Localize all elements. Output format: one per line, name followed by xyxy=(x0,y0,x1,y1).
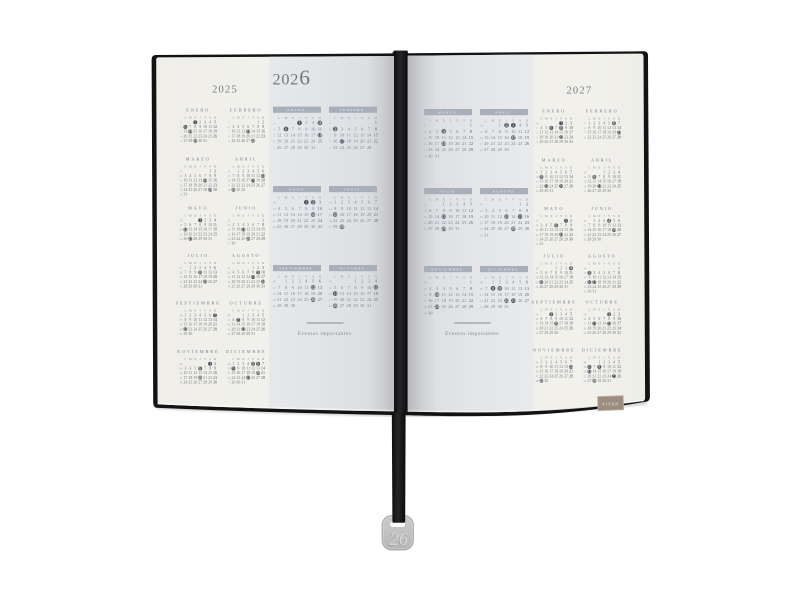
svg-text:425262728293031: 425262728293031 xyxy=(536,139,573,144)
svg-text:52728293031: 52728293031 xyxy=(180,138,207,143)
svg-text:3128293031: 3128293031 xyxy=(180,283,203,288)
svg-text:442728293031: 442728293031 xyxy=(228,331,256,336)
svg-text:41567891011: 41567891011 xyxy=(329,285,378,290)
svg-text:JUNIO: JUNIO xyxy=(235,206,257,211)
svg-text:FEBRERO: FEBRERO xyxy=(340,108,365,112)
svg-text:DICIEMBRE: DICIEMBRE xyxy=(582,348,623,353)
svg-text:2027: 2027 xyxy=(566,86,592,97)
svg-text:AGOSTO: AGOSTO xyxy=(492,190,514,194)
svg-text:816171819202122: 816171819202122 xyxy=(330,139,379,144)
svg-text:AGOSTO: AGOSTO xyxy=(588,254,617,259)
svg-text:ABRIL: ABRIL xyxy=(591,158,613,163)
svg-text:92425262728: 92425262728 xyxy=(228,138,255,143)
svg-text:1216171819202122: 1216171819202122 xyxy=(424,141,473,146)
svg-text:30262728293031: 30262728293031 xyxy=(536,284,569,289)
svg-text:MARZO: MARZO xyxy=(438,111,457,115)
svg-text:3525262728293031: 3525262728293031 xyxy=(228,283,266,288)
svg-text:4930: 4930 xyxy=(424,310,433,315)
svg-text:ENERO: ENERO xyxy=(186,108,210,113)
svg-text:ENERO: ENERO xyxy=(542,109,566,114)
svg-text:SEPTIEMBRE: SEPTIEMBRE xyxy=(279,267,313,271)
svg-text:40282930: 40282930 xyxy=(273,303,296,308)
svg-text:ENERO: ENERO xyxy=(287,108,305,112)
svg-text:822232425262728: 822232425262728 xyxy=(584,134,621,139)
svg-text:Eventos importantes: Eventos importantes xyxy=(445,331,499,337)
svg-text:312728293031: 312728293031 xyxy=(424,226,460,231)
svg-text:MARZO: MARZO xyxy=(186,157,211,162)
svg-text:ABRIL: ABRIL xyxy=(495,111,512,115)
svg-text:DICIEMBRE: DICIEMBRE xyxy=(226,349,267,354)
svg-text:DICIEMBRE: DICIEMBRE xyxy=(488,268,519,272)
svg-text:JULIO: JULIO xyxy=(187,253,208,258)
svg-text:522728293031: 522728293031 xyxy=(584,378,612,383)
svg-text:OCTUBRE: OCTUBRE xyxy=(586,300,619,305)
svg-text:JULIO: JULIO xyxy=(543,254,564,259)
svg-text:NOVIEMBRE: NOVIEMBRE xyxy=(533,348,576,353)
svg-text:MARZO: MARZO xyxy=(542,158,567,163)
svg-text:272930: 272930 xyxy=(329,224,345,229)
svg-text:286789101112: 286789101112 xyxy=(424,208,473,213)
svg-text:172627282930: 172627282930 xyxy=(584,188,612,193)
svg-text:JUNIO: JUNIO xyxy=(591,206,613,211)
svg-text:MAYO: MAYO xyxy=(188,206,208,211)
svg-text:ABRIL: ABRIL xyxy=(235,157,257,162)
svg-text:2225262728293031: 2225262728293031 xyxy=(273,224,322,229)
svg-text:FEBRERO: FEBRERO xyxy=(586,109,619,114)
svg-text:JULIO: JULIO xyxy=(439,190,455,194)
svg-text:4325262728293031: 4325262728293031 xyxy=(584,330,622,335)
svg-text:SEPTIEMBRE: SEPTIEMBRE xyxy=(532,300,577,305)
svg-text:1827282930: 1827282930 xyxy=(480,147,510,152)
svg-text:OCTUBRE: OCTUBRE xyxy=(340,267,365,271)
svg-text:26: 26 xyxy=(390,529,408,549)
svg-text:3927282930: 3927282930 xyxy=(536,330,559,335)
svg-text:1293031: 1293031 xyxy=(228,379,245,384)
svg-text:TITAN: TITAN xyxy=(602,401,620,407)
svg-text:AGOSTO: AGOSTO xyxy=(232,253,261,258)
svg-text:156789101112: 156789101112 xyxy=(480,129,529,134)
svg-text:JUNIO: JUNIO xyxy=(344,188,361,192)
svg-text:143031: 143031 xyxy=(424,153,439,158)
svg-text:5328293031: 5328293031 xyxy=(480,304,509,309)
svg-text:2515161718192021: 2515161718192021 xyxy=(329,212,378,217)
svg-text:MAYO: MAYO xyxy=(289,188,304,192)
svg-text:MAYO: MAYO xyxy=(544,206,564,211)
svg-text:2025: 2025 xyxy=(212,85,238,96)
svg-text:4824252627282930: 4824252627282930 xyxy=(180,379,218,384)
svg-text:NOVIEMBRE: NOVIEMBRE xyxy=(431,268,463,272)
svg-text:OCTUBRE: OCTUBRE xyxy=(230,301,263,306)
svg-text:3631: 3631 xyxy=(480,232,489,237)
svg-text:22262728293031: 22262728293031 xyxy=(180,236,213,241)
svg-text:FEBRERO: FEBRERO xyxy=(230,108,263,113)
svg-text:NOVIEMBRE: NOVIEMBRE xyxy=(177,349,220,354)
svg-text:SEPTIEMBRE: SEPTIEMBRE xyxy=(176,301,221,306)
svg-text:4716171819202122: 4716171819202122 xyxy=(424,298,473,303)
svg-text:Eventos importantes: Eventos importantes xyxy=(298,331,352,337)
